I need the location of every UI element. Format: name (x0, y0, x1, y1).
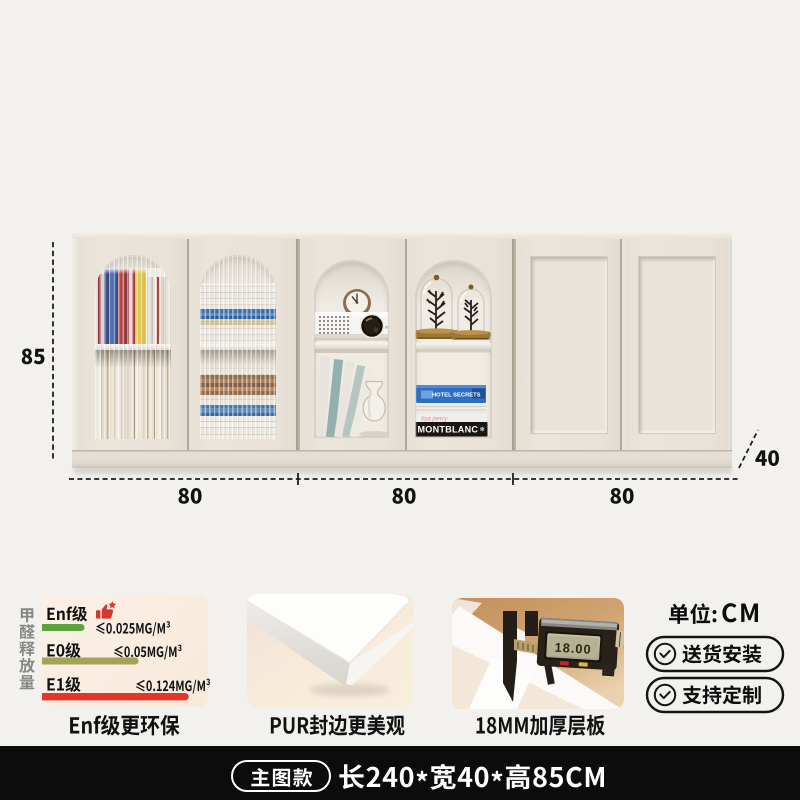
svg-text:MONTBLANC: MONTBLANC (418, 425, 479, 435)
svg-text:HOTEL SECRETS: HOTEL SECRETS (432, 393, 481, 399)
svg-text:❄: ❄ (480, 426, 486, 434)
svg-text:lisa perry: lisa perry (421, 416, 448, 423)
